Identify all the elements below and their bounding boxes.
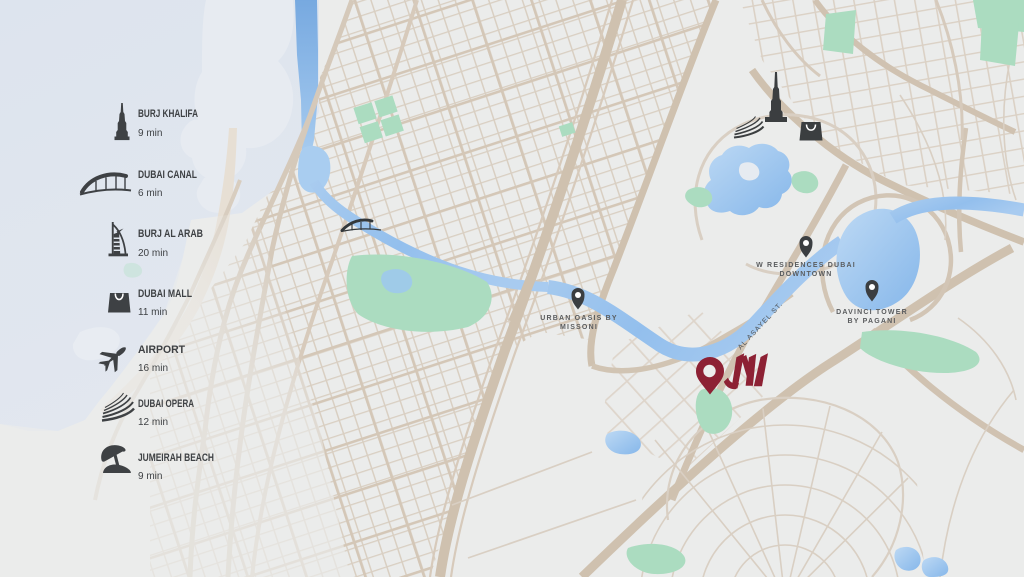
svg-text:12 min: 12 min: [138, 417, 168, 428]
svg-text:DUBAI OPERA: DUBAI OPERA: [138, 398, 194, 410]
svg-text:AIRPORT: AIRPORT: [138, 344, 186, 356]
svg-text:BY PAGANI: BY PAGANI: [847, 318, 896, 325]
svg-text:W RESIDENCES DUBAI: W RESIDENCES DUBAI: [756, 262, 856, 269]
svg-text:DAVINCI TOWER: DAVINCI TOWER: [836, 309, 908, 316]
svg-text:11 min: 11 min: [138, 307, 167, 318]
svg-text:MISSONI: MISSONI: [560, 324, 598, 331]
svg-text:6 min: 6 min: [138, 188, 162, 199]
svg-text:20 min: 20 min: [138, 248, 168, 259]
svg-text:JUMEIRAH BEACH: JUMEIRAH BEACH: [138, 452, 214, 464]
svg-text:DOWNTOWN: DOWNTOWN: [779, 271, 832, 278]
svg-text:BURJ KHALIFA: BURJ KHALIFA: [138, 108, 198, 120]
svg-text:9 min: 9 min: [138, 471, 162, 482]
svg-text:DUBAI CANAL: DUBAI CANAL: [138, 169, 197, 181]
svg-text:16 min: 16 min: [138, 363, 168, 374]
svg-text:URBAN OASIS BY: URBAN OASIS BY: [540, 315, 617, 322]
svg-text:DUBAI MALL: DUBAI MALL: [138, 288, 192, 300]
svg-text:9 min: 9 min: [138, 128, 162, 139]
svg-text:BURJ AL ARAB: BURJ AL ARAB: [138, 228, 203, 240]
